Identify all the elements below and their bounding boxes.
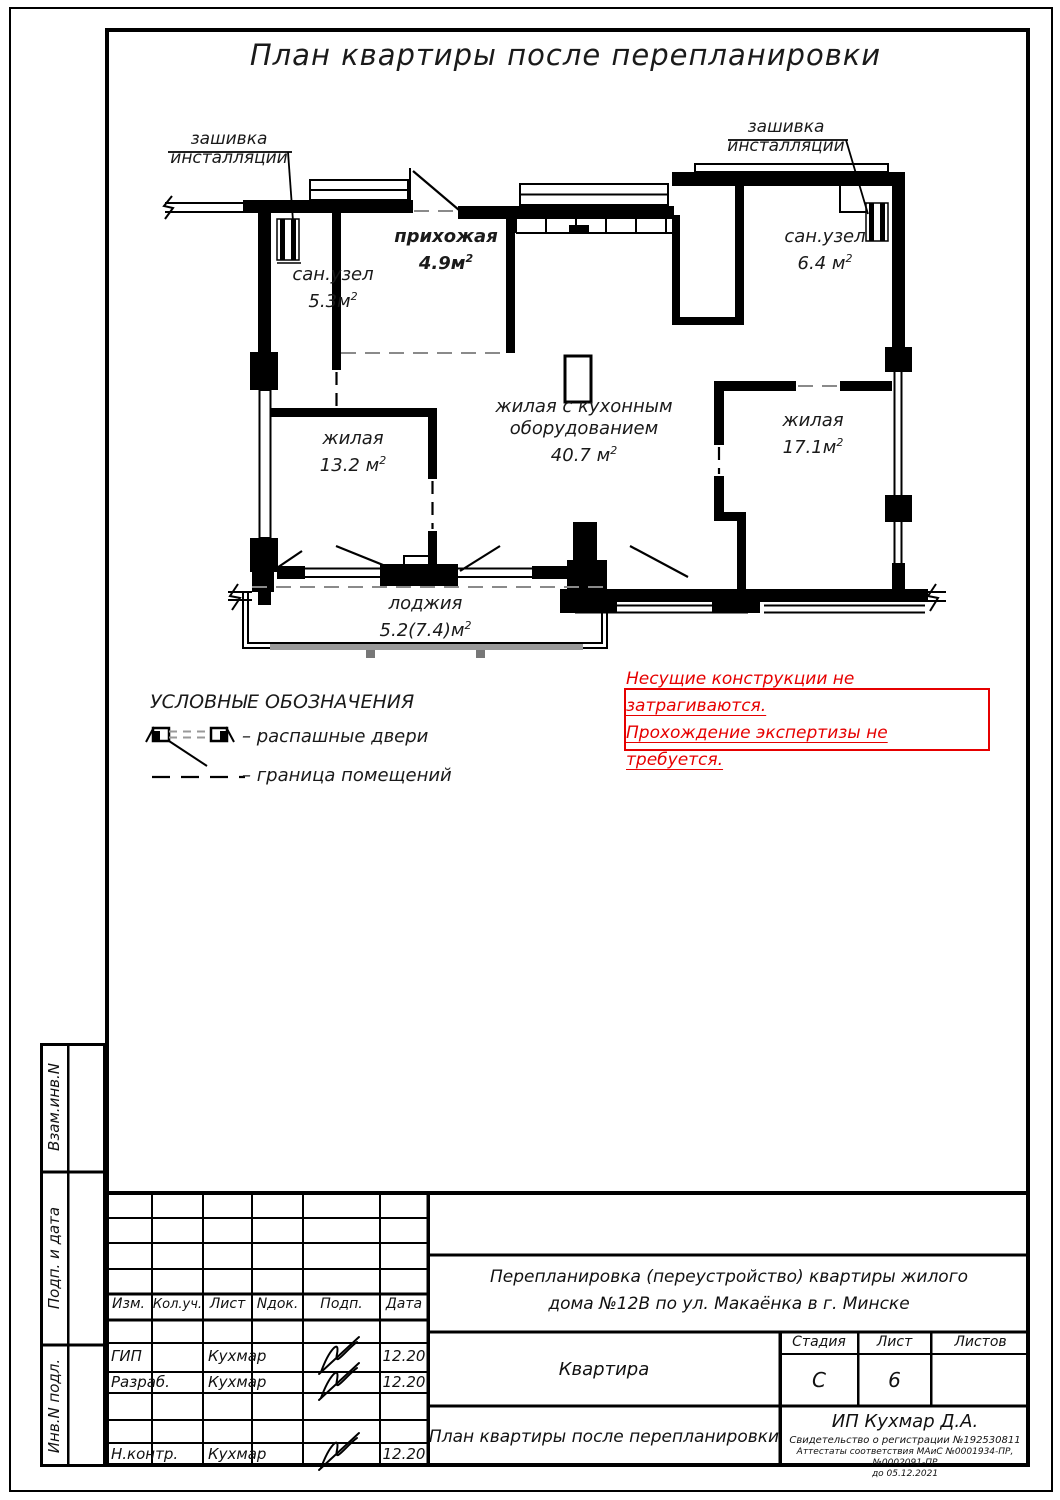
- room-name: прихожая: [362, 226, 530, 248]
- tb-project-line1: Перепланировка (переустройство) квартиры…: [432, 1264, 1026, 1291]
- room-area: 17.1м2: [728, 432, 898, 459]
- duct-annotation-left-line2: инсталляции: [148, 149, 310, 168]
- legend-door-label: – распашные двери: [242, 726, 428, 747]
- legend-boundary-label: – граница помещений: [242, 765, 452, 786]
- tb-row-gip-date: 12.20: [380, 1347, 428, 1365]
- duct-annotation-right-line1: зашивка: [706, 118, 866, 137]
- sidebar-label-podp: Подп. и дата: [43, 1175, 65, 1341]
- tb-header-list: Лист: [203, 1296, 252, 1312]
- legend-title: УСЛОВНЫЕ ОБОЗНАЧЕНИЯ: [150, 691, 414, 713]
- tb-sheet-value: 6: [858, 1354, 931, 1406]
- tb-row-nkontr-name: Кухмар: [208, 1445, 266, 1463]
- sidebar-label-inv: Инв.N подл.: [43, 1348, 65, 1464]
- room-label-living1: жилая 13.2 м2: [268, 428, 438, 477]
- room-area: 5.2(7.4)м2: [338, 615, 513, 642]
- room-area: 4.9м2: [362, 248, 530, 275]
- room-area: 13.2 м2: [268, 450, 438, 477]
- tb-firm-block: ИП Кухмар Д.А. Свидетельство о регистрац…: [784, 1410, 1026, 1480]
- tb-project-line2: дома №12В по ул. Макаёнка в г. Минске: [432, 1291, 1026, 1318]
- tb-firm-cert: Свидетельство о регистрации №192530811: [784, 1434, 1026, 1447]
- room-name: жилая: [268, 428, 438, 450]
- room-label-living2: жилая 17.1м2: [728, 410, 898, 459]
- tb-header-podp: Подп.: [303, 1296, 380, 1312]
- tb-project-name: Перепланировка (переустройство) квартиры…: [432, 1264, 1026, 1318]
- tb-row-razrab-role: Разраб.: [111, 1373, 170, 1391]
- tb-row-nkontr-role: Н.контр.: [111, 1445, 178, 1463]
- duct-annotation-right: зашивка инсталляции: [706, 118, 866, 156]
- room-area: 5.3м2: [248, 286, 418, 313]
- tb-firm-until: до 05.12.2021: [784, 1469, 1026, 1480]
- tb-list-label: Лист: [858, 1334, 931, 1350]
- duct-annotation-left-line1: зашивка: [148, 130, 310, 149]
- tb-listov-label: Листов: [931, 1334, 1030, 1350]
- legend-symbols: [146, 727, 245, 777]
- room-label-san2: сан.узел 6.4 м2: [740, 226, 910, 275]
- tb-firm-attest: Аттестаты соответствия МАиС №0001934-ПР,…: [784, 1447, 1026, 1469]
- tb-sheet-title: План квартиры после перепланировки: [428, 1406, 780, 1467]
- room-label-kitchen: жилая с кухонным оборудованием 40.7 м2: [468, 396, 700, 467]
- sidebar-label-vzam: Взам.инв.N: [43, 1046, 65, 1168]
- tb-row-razrab-name: Кухмар: [208, 1373, 266, 1391]
- room-label-loggia: лоджия 5.2(7.4)м2: [338, 593, 513, 642]
- engineering-note: Несущие конструкции не затрагиваются. Пр…: [624, 688, 990, 751]
- tb-header-koluch: Кол.уч.: [152, 1297, 203, 1312]
- drawing-title: План квартиры после перепланировки: [105, 38, 1026, 72]
- tb-firm-name: ИП Кухмар Д.А.: [784, 1410, 1026, 1434]
- duct-annotation-left: зашивка инсталляции: [148, 130, 310, 168]
- room-name-line1: жилая с кухонным: [468, 396, 700, 418]
- tb-header-ndok: Nдок.: [252, 1296, 303, 1312]
- tb-header-date: Дата: [380, 1296, 428, 1312]
- tb-header-izm: Изм.: [105, 1296, 152, 1312]
- room-area: 6.4 м2: [740, 248, 910, 275]
- room-name-line2: оборудованием: [468, 418, 700, 440]
- room-name: сан.узел: [740, 226, 910, 248]
- drawing-page: План квартиры после перепланировки зашив…: [0, 0, 1060, 1500]
- room-label-hall: прихожая 4.9м2: [362, 226, 530, 275]
- room-name: жилая: [728, 410, 898, 432]
- tb-row-nkontr-date: 12.20: [380, 1445, 428, 1463]
- tb-row-gip-name: Кухмар: [208, 1347, 266, 1365]
- tb-object-name: Квартира: [428, 1332, 780, 1406]
- signatures: [319, 1337, 359, 1470]
- duct-annotation-right-line2: инсталляции: [706, 137, 866, 156]
- room-name: лоджия: [338, 593, 513, 615]
- tb-row-gip-role: ГИП: [111, 1347, 142, 1365]
- engineering-note-line2: Прохождение экспертизы не требуется.: [626, 720, 988, 774]
- tb-stage-label: Стадия: [780, 1334, 858, 1350]
- tb-row-razrab-date: 12.20: [380, 1373, 428, 1391]
- tb-stage-value: С: [780, 1354, 858, 1406]
- room-area: 40.7 м2: [468, 440, 700, 467]
- engineering-note-line1: Несущие конструкции не затрагиваются.: [626, 666, 988, 720]
